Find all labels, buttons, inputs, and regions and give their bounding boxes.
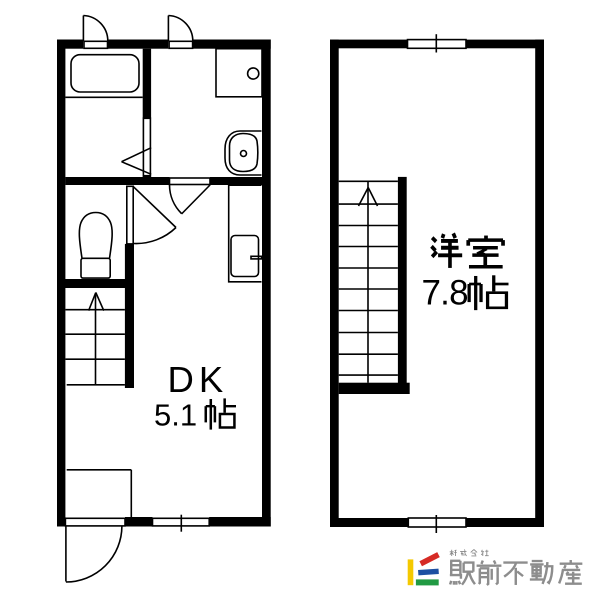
- svg-text:DK: DK: [168, 359, 229, 400]
- svg-text:5.1: 5.1: [154, 397, 197, 432]
- svg-text:7.8: 7.8: [422, 273, 468, 312]
